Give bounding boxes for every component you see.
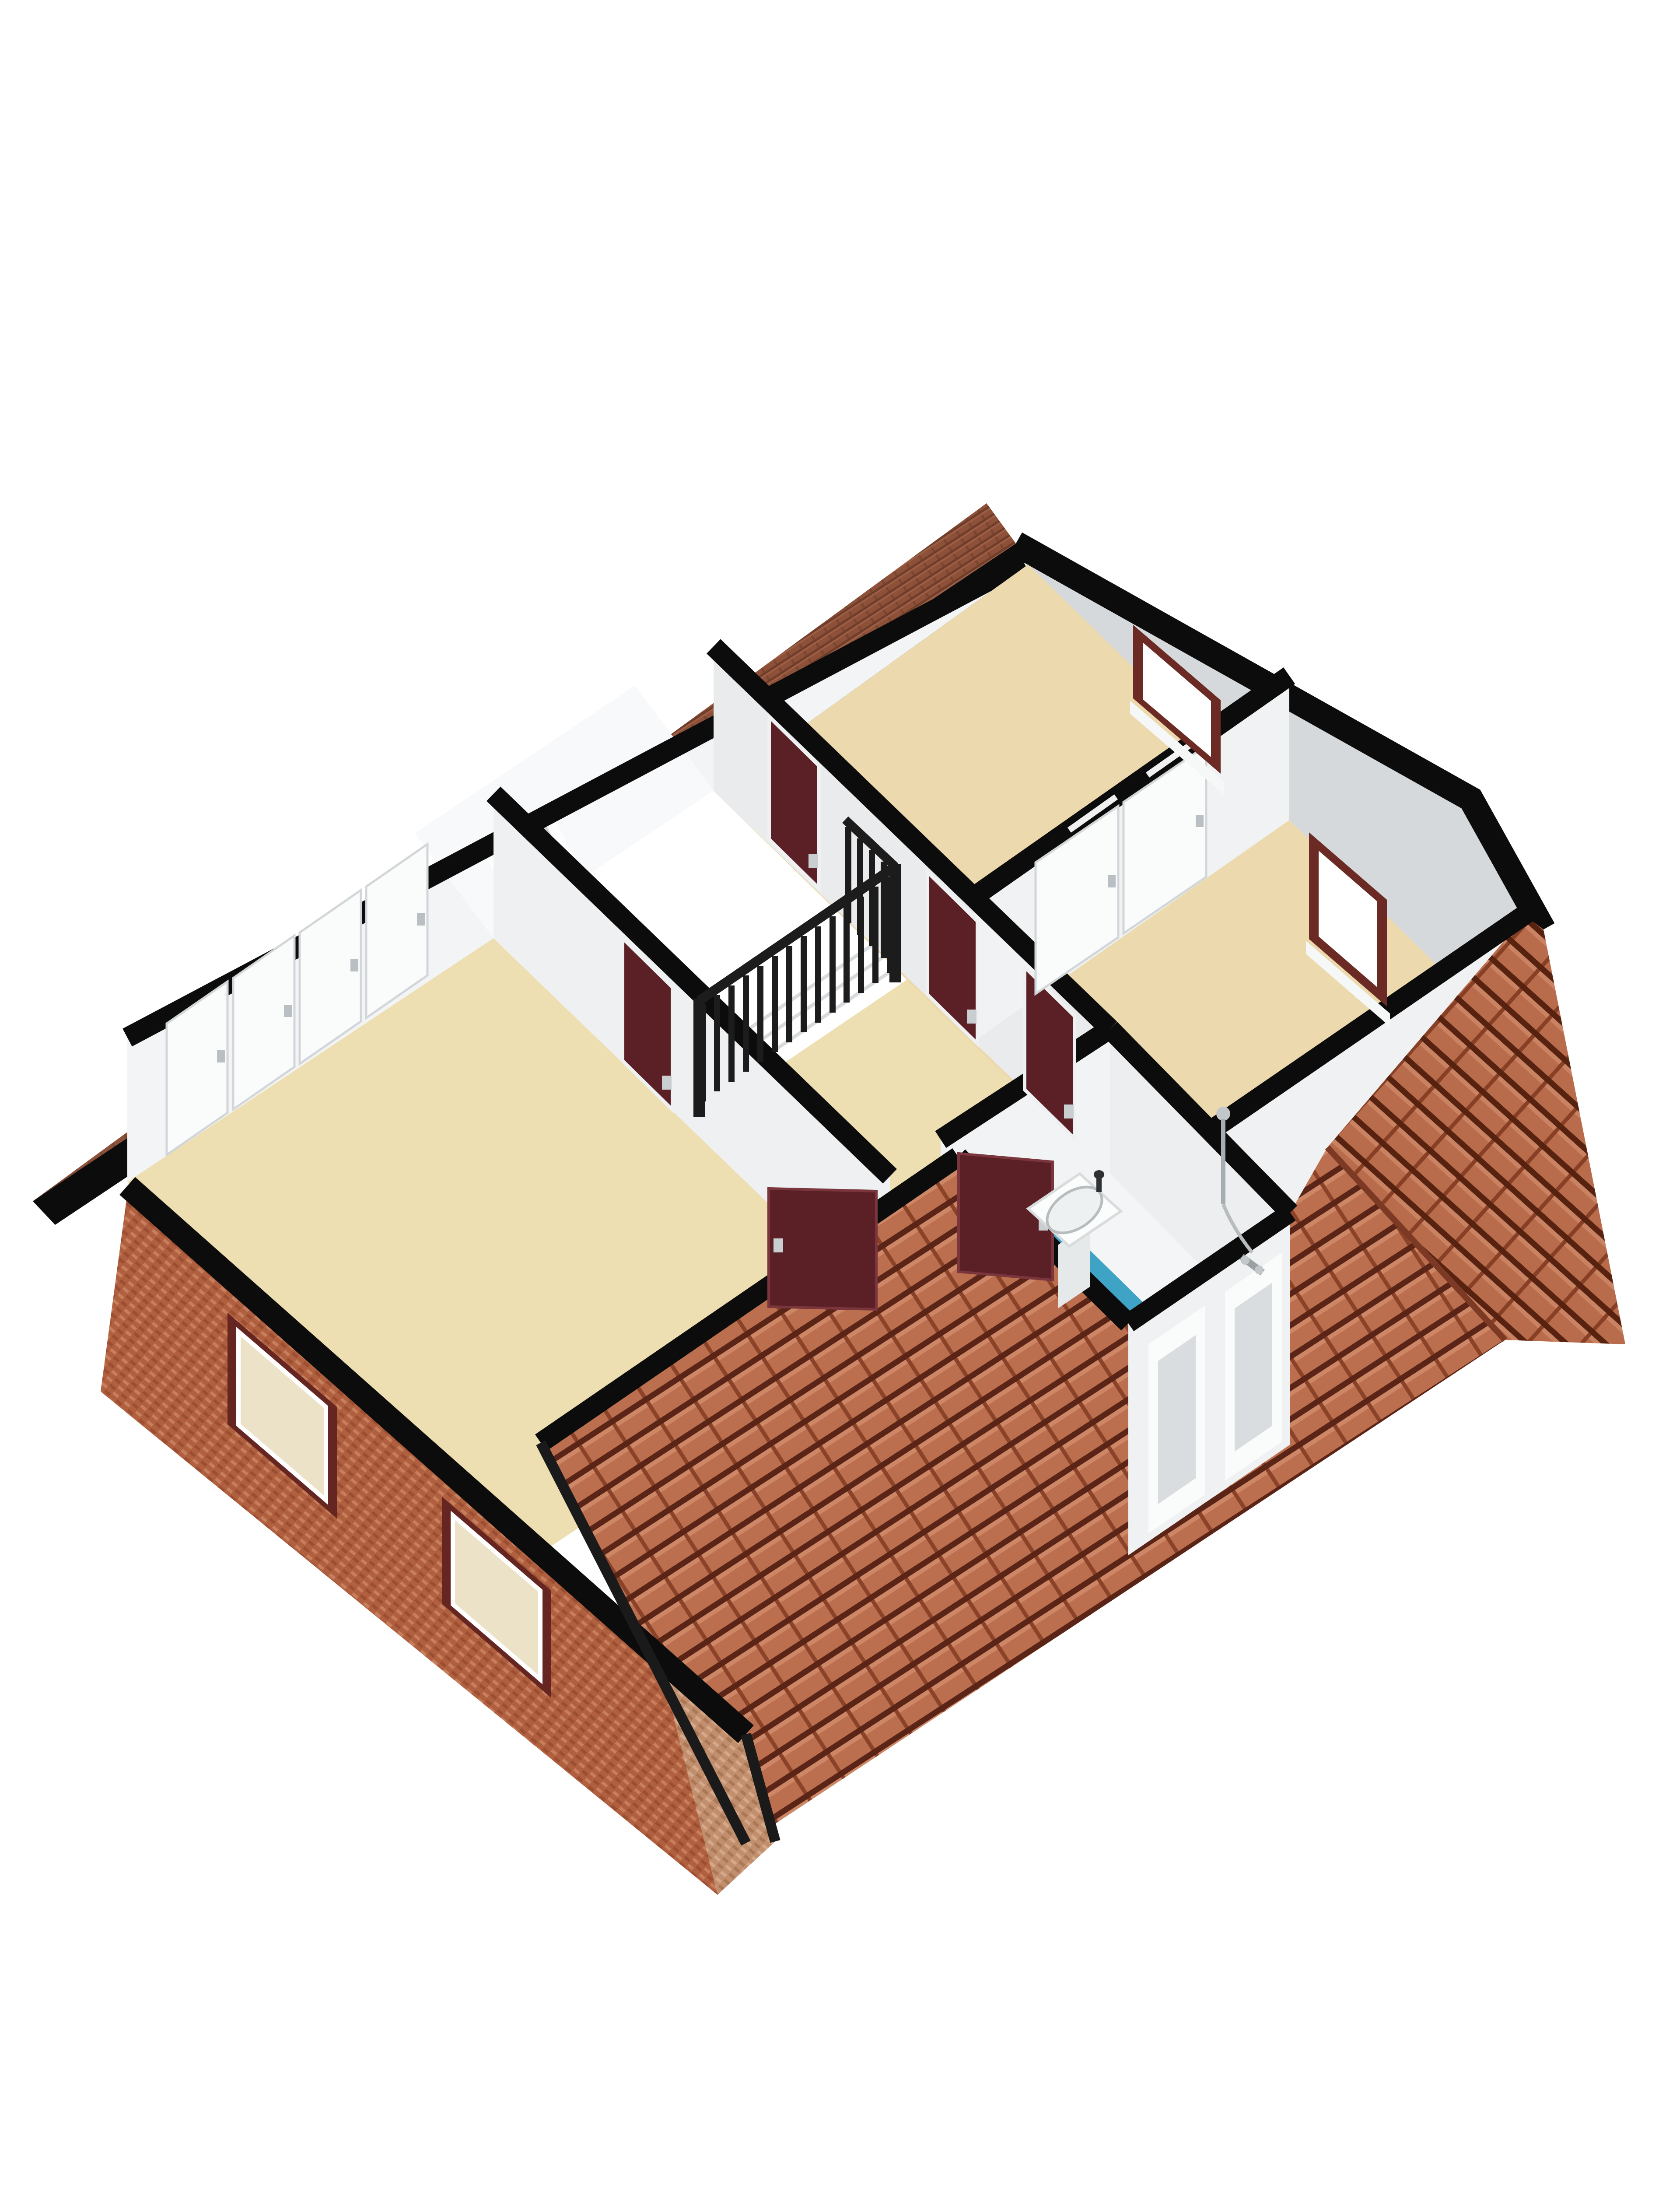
door-handle: [773, 1238, 783, 1252]
sink-faucet-head: [1094, 1170, 1104, 1179]
door-handle: [662, 1076, 672, 1090]
door-maroon-open: [769, 1189, 876, 1309]
dormer-window-glass: [1158, 1335, 1196, 1504]
house-upper-floor: [33, 503, 1625, 1895]
dormer-window-glass: [1235, 1283, 1272, 1452]
closet-handle: [1196, 815, 1204, 827]
door-handle: [1064, 1105, 1074, 1119]
shower-knob: [1241, 1256, 1249, 1265]
closet-handle: [417, 913, 425, 926]
closet-handle: [284, 1005, 292, 1017]
floorplan-3d-stage: [0, 0, 1680, 2188]
closet-handle: [1108, 875, 1116, 887]
door-handle: [808, 854, 818, 868]
shower-knob: [1255, 1266, 1263, 1274]
floorplan-3d-render: [0, 0, 1680, 2188]
closet-handle: [350, 959, 358, 971]
door-handle: [967, 1010, 976, 1024]
closet-handle: [217, 1050, 225, 1062]
shower-head: [1216, 1107, 1230, 1121]
